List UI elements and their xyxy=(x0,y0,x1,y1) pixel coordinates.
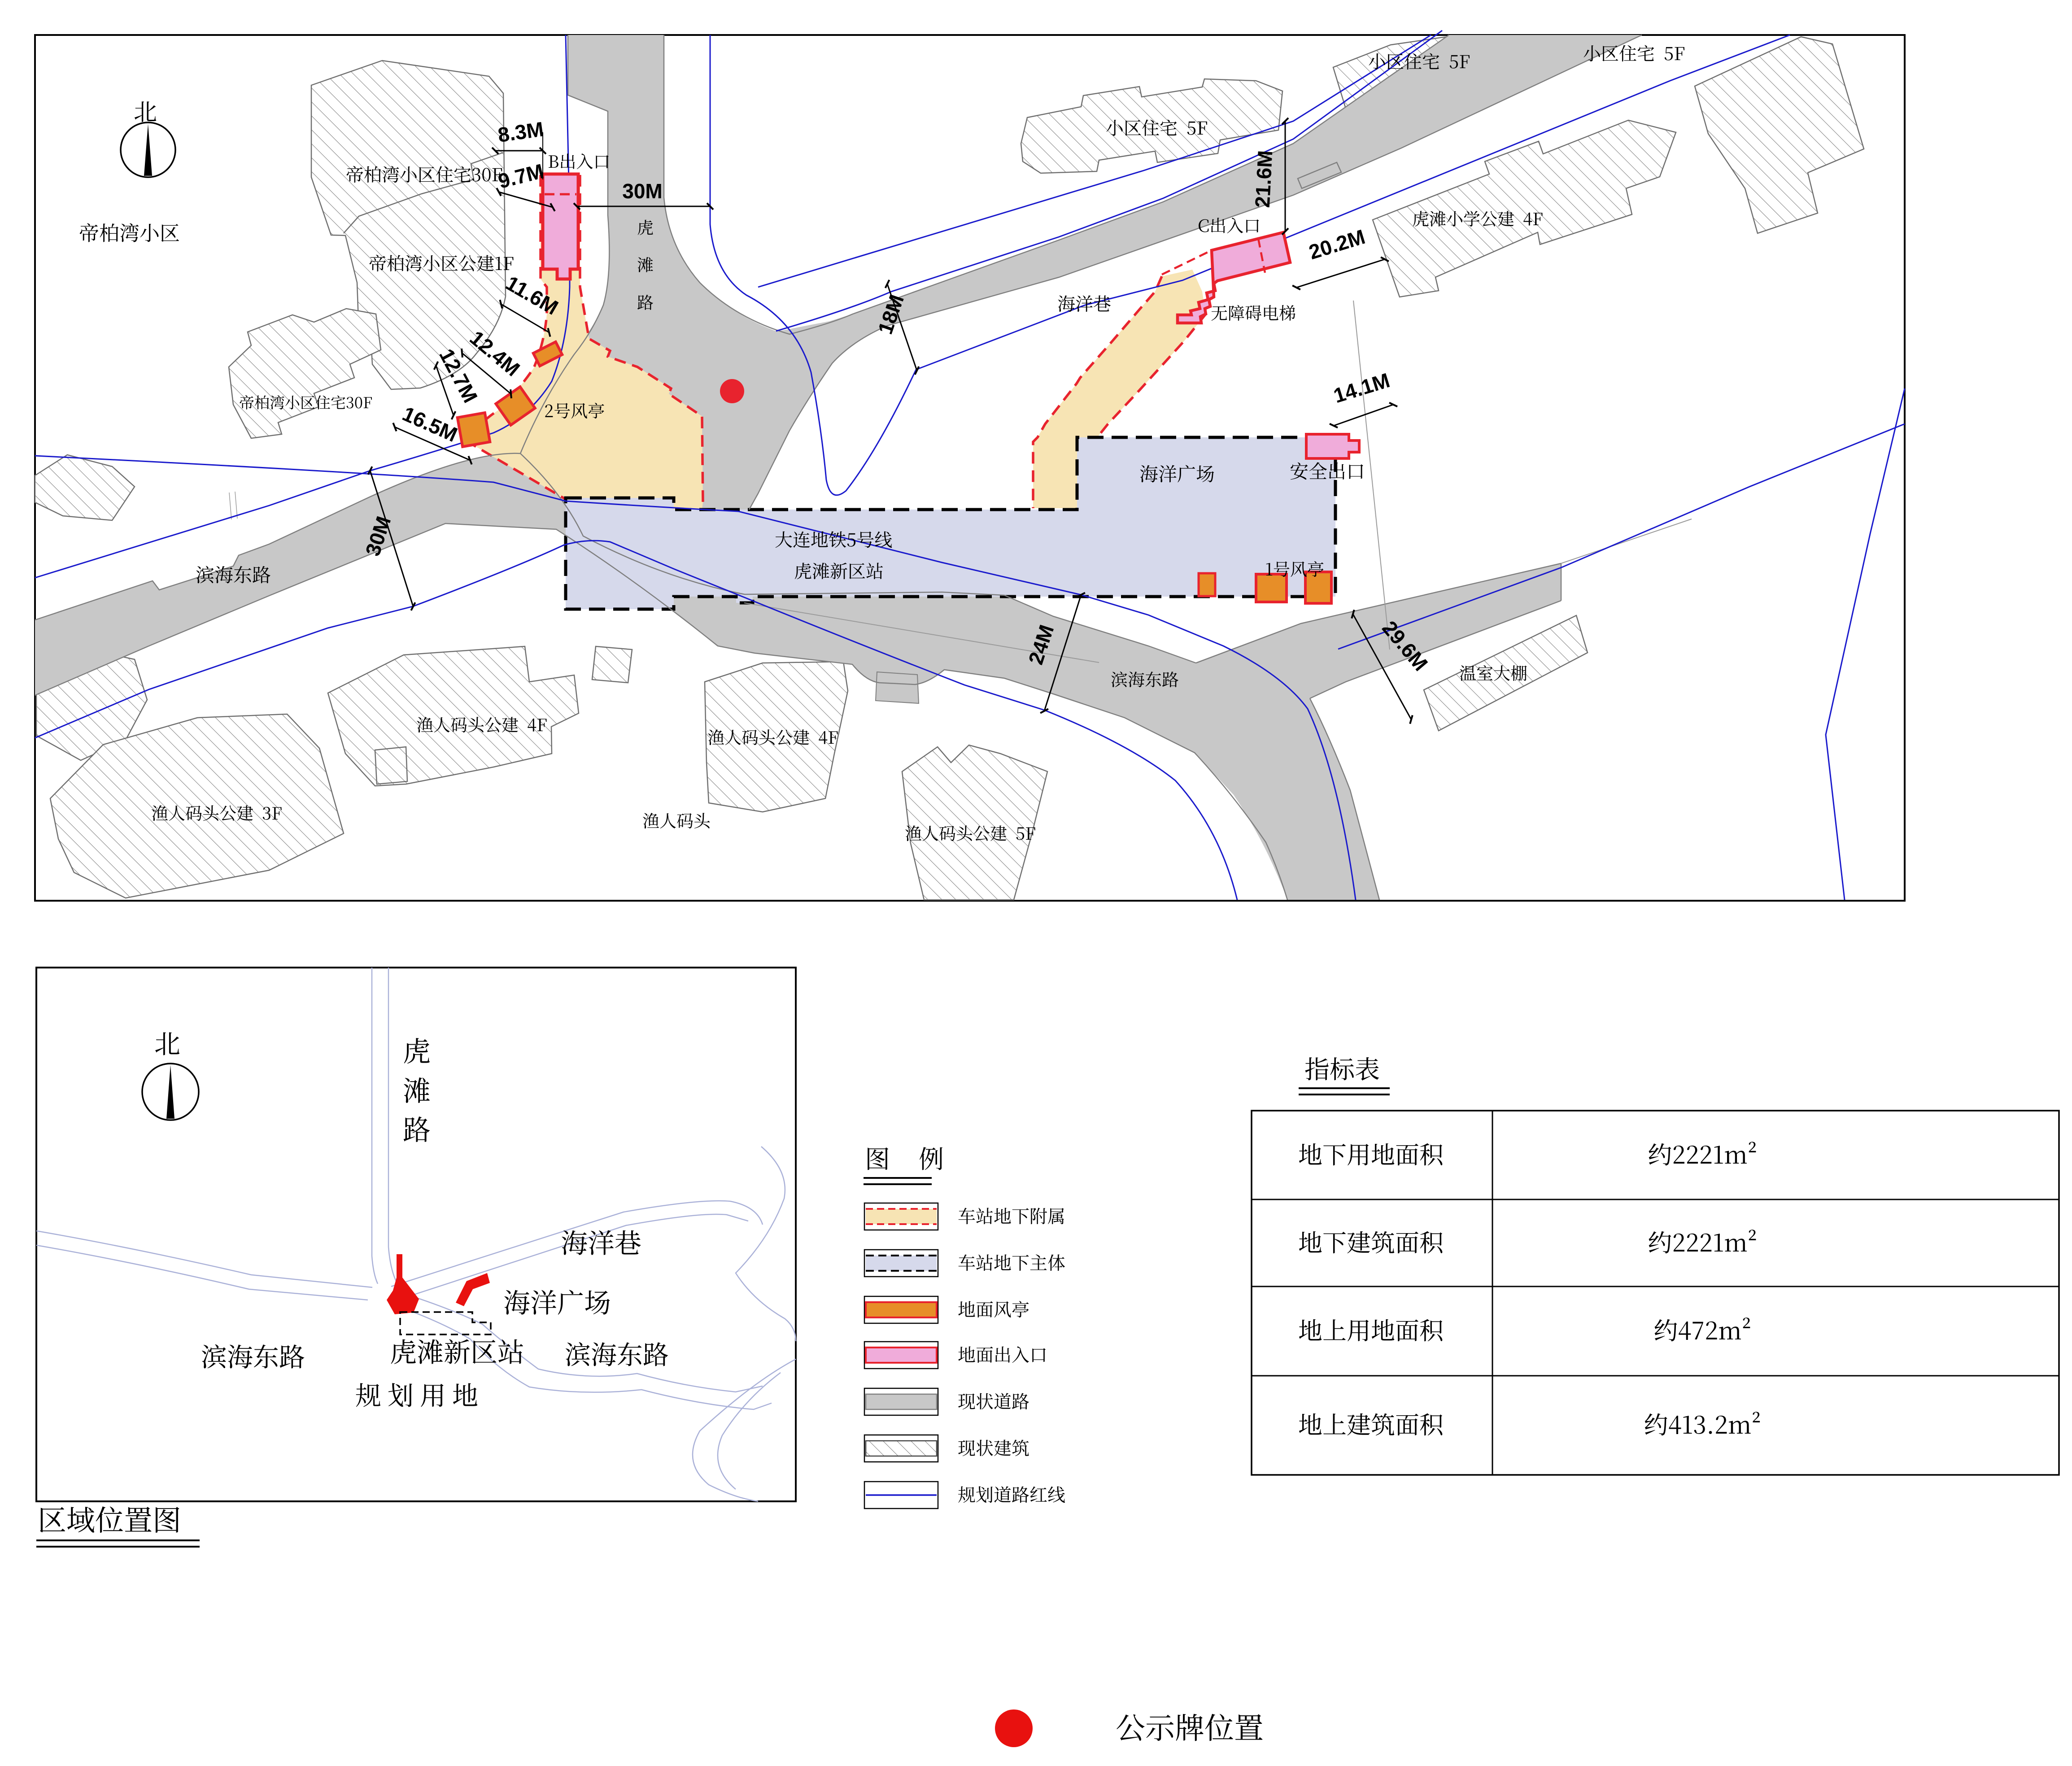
svg-text:21.6M: 21.6M xyxy=(1251,150,1277,208)
svg-text:30M: 30M xyxy=(622,179,662,203)
